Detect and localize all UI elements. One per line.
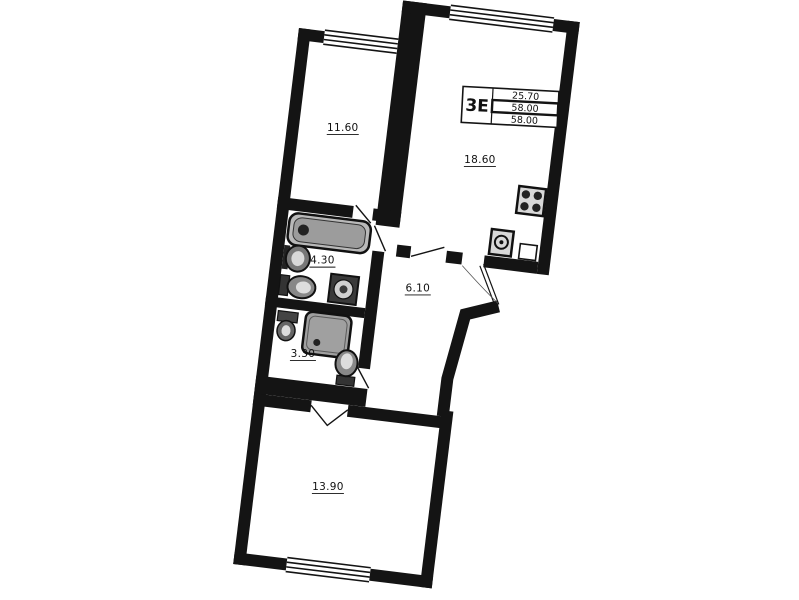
room-a-area: 11.60	[327, 122, 359, 135]
title-block-row-3: 58.00	[511, 114, 539, 126]
washing-machine-icon	[328, 274, 359, 305]
wc-area-text: 3.30	[291, 348, 316, 360]
title-block: 3Е 25.70 58.00 58.00	[461, 86, 559, 127]
kitchen-area: 18.60	[464, 154, 496, 167]
kitchen-sink-icon	[489, 229, 514, 256]
title-block-row-2: 58.00	[511, 103, 539, 115]
kitchen-area-text: 18.60	[464, 154, 496, 166]
bathroom-area: 4.30	[309, 255, 335, 268]
bathroom-area-text: 4.30	[310, 255, 335, 267]
kitchen-bottom-wall-b	[446, 251, 463, 265]
hallway-area-text: 6.10	[405, 282, 430, 294]
room-c-area-text: 13.90	[312, 481, 344, 493]
floor-plan-scan: 11.60 18.60 4.30 6.10 3.30	[0, 0, 799, 600]
stove-icon	[516, 186, 546, 216]
room-a-area-text: 11.60	[327, 122, 359, 134]
wc-area: 3.30	[290, 348, 316, 361]
floor-plan-svg: 11.60 18.60 4.30 6.10 3.30	[0, 0, 799, 600]
kitchen-bottom-wall-a	[396, 245, 411, 259]
hallway-area: 6.10	[405, 282, 431, 295]
unit-type-label: 3Е	[465, 96, 489, 117]
room-c-area: 13.90	[312, 481, 344, 494]
wall-niche	[519, 244, 538, 261]
title-block-row-1: 25.70	[512, 91, 540, 103]
